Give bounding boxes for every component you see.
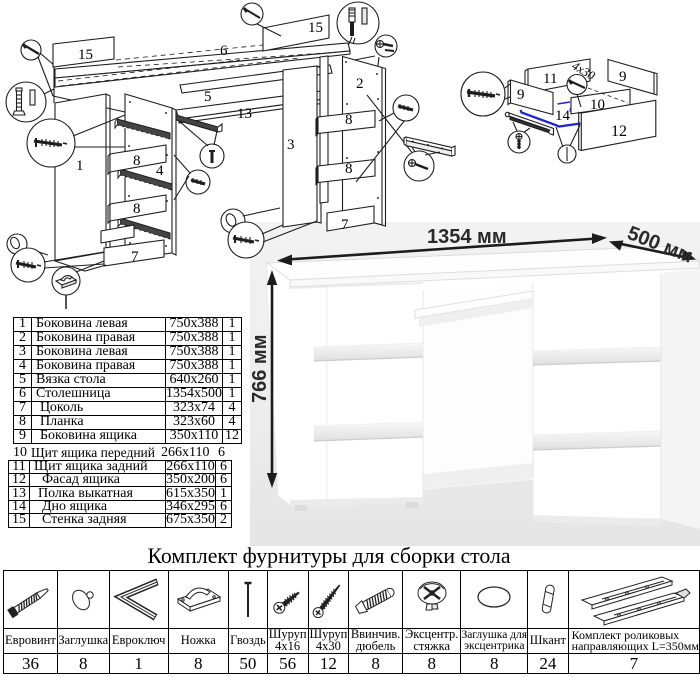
svg-text:7: 7 [341,217,349,233]
svg-text:2: 2 [356,76,364,92]
svg-text:12: 12 [611,123,627,140]
svg-text:8: 8 [133,201,141,217]
svg-text:7: 7 [131,249,139,265]
svg-text:14: 14 [555,108,571,124]
svg-text:4: 4 [156,163,164,179]
svg-text:8: 8 [345,112,353,128]
svg-text:15: 15 [78,47,93,63]
svg-text:11: 11 [543,71,557,87]
svg-text:766 мм: 766 мм [249,334,271,403]
svg-text:1354 мм: 1354 мм [427,226,507,248]
svg-text:5: 5 [204,89,212,105]
svg-text:1: 1 [76,158,84,174]
svg-text:13: 13 [237,106,252,122]
svg-text:3: 3 [287,137,295,153]
svg-text:8: 8 [345,161,353,177]
svg-text:15: 15 [308,20,323,36]
svg-text:6: 6 [220,43,228,59]
svg-text:9: 9 [619,69,627,85]
svg-text:8: 8 [133,153,141,169]
svg-text:9: 9 [517,87,525,103]
